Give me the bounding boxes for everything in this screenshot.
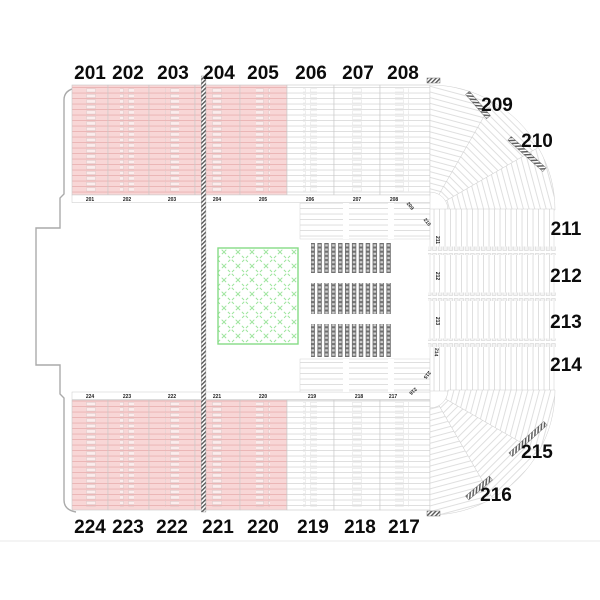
section-212-label: 212	[550, 266, 582, 287]
section-222-mini-label: 222	[168, 394, 177, 400]
section-213-mini-label: 213	[434, 317, 440, 326]
section-216-label: 216	[480, 485, 512, 506]
bottom-band	[72, 392, 430, 510]
section-219-mini-label: 219	[308, 394, 317, 400]
section-221-mini-label: 221	[213, 394, 222, 400]
platform-bottom-right	[427, 511, 440, 516]
section-222-label: 222	[156, 517, 188, 538]
section-215-label: 215	[521, 442, 553, 463]
section-224-label: 224	[74, 517, 106, 538]
section-211-mini-label: 211	[434, 236, 440, 244]
section-206-mini-label: 206	[306, 197, 315, 203]
section-206-label: 206	[295, 63, 327, 84]
section-202-label: 202	[112, 63, 144, 84]
section-207-mini-label: 207	[353, 197, 362, 203]
section-220-mini-label: 220	[259, 394, 268, 400]
section-204-mini-label: 204	[213, 197, 222, 203]
section-214-label: 214	[550, 355, 582, 376]
section-217-mini-label: 217	[389, 394, 398, 400]
section-204-label: 204	[203, 63, 235, 84]
floor-seating	[311, 243, 393, 357]
section-220-label: 220	[247, 517, 279, 538]
lower-tier-rows-bottom	[300, 359, 430, 392]
arena-outline	[36, 88, 76, 512]
floor-seat-block-2[interactable]	[311, 283, 393, 314]
floor-seat-block-3[interactable]	[311, 324, 393, 357]
section-211-label: 211	[551, 219, 582, 240]
section-201-mini-label: 201	[86, 197, 95, 203]
section-208-label: 208	[387, 63, 419, 84]
section-223-label: 223	[112, 517, 144, 538]
section-205-mini-label: 205	[259, 197, 268, 203]
section-221-label: 221	[202, 517, 234, 538]
section-218-label: 218	[344, 517, 376, 538]
section-203-mini-label: 203	[168, 197, 177, 203]
section-202-mini-label: 202	[123, 197, 132, 203]
floor-seat-block-1[interactable]	[311, 243, 393, 273]
section-205-label: 205	[247, 63, 279, 84]
section-214-mini-label: 214	[433, 348, 440, 357]
top-band	[72, 85, 430, 203]
section-210-label: 210	[521, 131, 553, 152]
seating-map: 201 202 203 204 205 206 207 208 209 210 …	[0, 0, 600, 600]
top-section-labels: 201 202 203 204 205 206 207 208	[74, 63, 419, 84]
section-201-label: 201	[74, 63, 106, 84]
camera-aisle-strip	[201, 76, 206, 512]
section-219-label: 219	[297, 517, 329, 538]
platform-top-right	[427, 78, 440, 83]
section-207-label: 207	[342, 63, 374, 84]
section-209-label: 209	[481, 95, 513, 116]
bottom-section-labels: 224 223 222 221 220 219 218 217	[74, 517, 420, 538]
stage-area	[218, 248, 298, 344]
section-224-mini-label: 224	[86, 394, 95, 400]
section-218-mini-label: 218	[355, 394, 364, 400]
section-223-mini-label: 223	[123, 394, 132, 400]
section-213-label: 213	[550, 312, 582, 333]
section-203-label: 203	[157, 63, 189, 84]
section-208-mini-label: 208	[390, 197, 399, 203]
section-217-label: 217	[388, 517, 420, 538]
section-212-mini-label: 212	[434, 272, 440, 281]
